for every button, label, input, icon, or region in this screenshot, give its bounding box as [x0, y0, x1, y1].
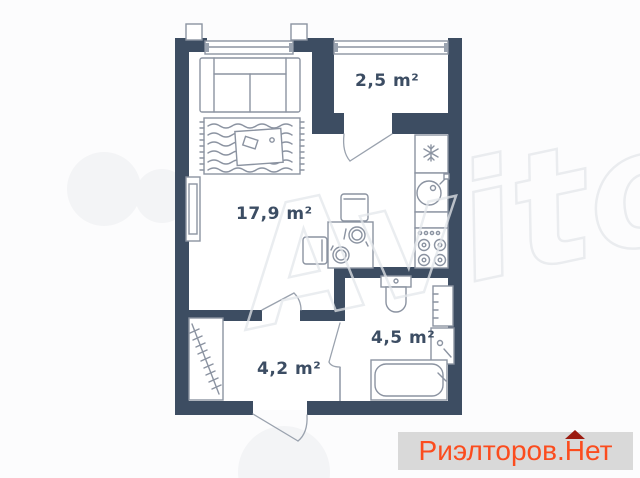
- coffee-table: [235, 128, 283, 165]
- pilaster-mark: [291, 24, 307, 40]
- window-cap: [444, 43, 448, 52]
- wall-balcony-bottom-left: [312, 113, 344, 134]
- wall-bottom-right: [307, 401, 462, 415]
- floor-plan-image: 17,9 m² 2,5 m² 4,2 m² 4,5 m² Avito Риэлт…: [0, 0, 640, 478]
- site-house-letter: Н: [565, 437, 585, 465]
- bubble-icon: [238, 426, 330, 478]
- wall-bottom-left: [175, 401, 253, 415]
- bubble-icon: [67, 152, 141, 226]
- roof-icon: [565, 430, 585, 439]
- sofa: [200, 58, 300, 112]
- site-text-before: Риэлторов.: [419, 437, 565, 465]
- window-cap: [334, 43, 338, 52]
- wall-balcony-bottom-right: [392, 113, 452, 134]
- pilaster-mark: [186, 24, 202, 40]
- window-cap: [205, 43, 209, 52]
- wardrobe: [189, 318, 223, 400]
- radiator: [186, 177, 200, 241]
- bathtub: [371, 360, 447, 400]
- floor-plan-svg: 17,9 m² 2,5 m² 4,2 m² 4,5 m² Avito: [0, 0, 640, 478]
- window-cap: [289, 43, 293, 52]
- site-watermark-bar: Риэлторов.Нет: [398, 432, 633, 470]
- room-label-balcony: 2,5 m²: [355, 71, 419, 91]
- site-text-after: ет: [585, 437, 612, 465]
